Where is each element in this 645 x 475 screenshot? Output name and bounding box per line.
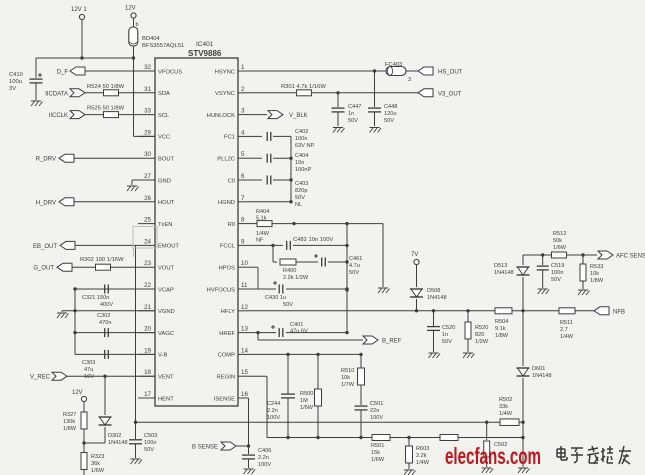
svg-text:14: 14 bbox=[241, 347, 248, 354]
svg-text:20: 20 bbox=[144, 326, 151, 333]
svg-text:5: 5 bbox=[241, 151, 245, 158]
svg-text:C0: C0 bbox=[228, 178, 235, 184]
svg-text:50V: 50V bbox=[144, 447, 154, 453]
svg-text:23: 23 bbox=[144, 260, 151, 267]
svg-text:R533: R533 bbox=[590, 264, 603, 270]
svg-text:1M: 1M bbox=[300, 398, 308, 404]
svg-text:R502: R502 bbox=[499, 397, 512, 403]
svg-text:1N4148: 1N4148 bbox=[494, 270, 514, 276]
svg-text:820: 820 bbox=[475, 332, 484, 338]
svg-text:2.7: 2.7 bbox=[560, 327, 568, 333]
svg-text:50V: 50V bbox=[348, 118, 358, 124]
svg-text:3: 3 bbox=[408, 77, 411, 83]
svg-text:27: 27 bbox=[144, 173, 151, 180]
svg-text:C501: C501 bbox=[370, 401, 383, 407]
svg-text:47u 6V: 47u 6V bbox=[290, 329, 308, 335]
svg-text:R501: R501 bbox=[371, 443, 384, 449]
svg-text:1n: 1n bbox=[348, 111, 354, 117]
svg-text:C430 1u: C430 1u bbox=[265, 295, 286, 301]
svg-text:17: 17 bbox=[144, 391, 151, 398]
svg-text:25: 25 bbox=[144, 217, 151, 224]
svg-text:C503: C503 bbox=[144, 433, 157, 439]
svg-text:R524 50 1/8W: R524 50 1/8W bbox=[87, 84, 125, 90]
svg-text:7V: 7V bbox=[411, 252, 418, 258]
svg-text:EMOUT: EMOUT bbox=[158, 244, 179, 250]
svg-text:3: 3 bbox=[241, 108, 245, 115]
svg-text:31: 31 bbox=[144, 86, 151, 93]
svg-text:10n: 10n bbox=[295, 160, 304, 166]
svg-text:C401: C401 bbox=[290, 322, 303, 328]
svg-text:IICCLK: IICCLK bbox=[49, 113, 68, 119]
svg-text:1: 1 bbox=[241, 64, 245, 71]
svg-text:33: 33 bbox=[144, 108, 151, 115]
svg-text:C303: C303 bbox=[82, 360, 95, 366]
svg-text:22: 22 bbox=[144, 282, 151, 289]
svg-text:V3_OUT: V3_OUT bbox=[438, 91, 462, 97]
svg-text:GND: GND bbox=[158, 178, 171, 184]
svg-text:B_REF: B_REF bbox=[382, 339, 402, 345]
svg-text:7: 7 bbox=[241, 195, 245, 202]
svg-text:R500: R500 bbox=[300, 391, 313, 397]
svg-text:1/6W: 1/6W bbox=[553, 245, 567, 251]
svg-text:R323: R323 bbox=[91, 454, 104, 460]
svg-text:63V NP: 63V NP bbox=[295, 143, 315, 149]
svg-text:1/6W: 1/6W bbox=[371, 457, 385, 463]
svg-text:VCC: VCC bbox=[158, 135, 170, 141]
svg-text:100V: 100V bbox=[258, 462, 271, 468]
svg-text:PLL2C: PLL2C bbox=[217, 157, 235, 163]
svg-text:B SENSE: B SENSE bbox=[192, 445, 218, 451]
svg-text:1N4148: 1N4148 bbox=[108, 440, 128, 446]
svg-text:VCAP: VCAP bbox=[158, 287, 174, 293]
svg-text:C404: C404 bbox=[295, 153, 308, 159]
svg-text:D513: D513 bbox=[494, 263, 507, 269]
svg-text:G_OUT: G_OUT bbox=[33, 266, 54, 272]
svg-text:50V: 50V bbox=[384, 118, 394, 124]
svg-text:12: 12 bbox=[241, 304, 248, 311]
svg-text:3V: 3V bbox=[9, 86, 16, 92]
svg-text:V-B: V-B bbox=[158, 353, 167, 359]
svg-text:1/4W: 1/4W bbox=[256, 231, 270, 237]
svg-text:11: 11 bbox=[241, 282, 248, 289]
svg-text:R_DRV: R_DRV bbox=[36, 157, 56, 163]
svg-text:C406: C406 bbox=[258, 448, 271, 454]
svg-text:9.1k: 9.1k bbox=[495, 326, 506, 332]
svg-text:100V: 100V bbox=[370, 415, 383, 421]
svg-text:C321 150n: C321 150n bbox=[82, 295, 109, 301]
svg-text:1N4148: 1N4148 bbox=[532, 373, 552, 379]
svg-text:820p: 820p bbox=[295, 188, 307, 194]
svg-text:R302 100 1/16W: R302 100 1/16W bbox=[80, 257, 124, 263]
svg-text:2.2n: 2.2n bbox=[258, 455, 269, 461]
svg-text:15: 15 bbox=[241, 369, 248, 376]
svg-text:HS_OUT: HS_OUT bbox=[438, 70, 463, 76]
svg-text:VSYNC: VSYNC bbox=[215, 91, 235, 97]
svg-text:D601: D601 bbox=[532, 366, 545, 372]
svg-text:29: 29 bbox=[144, 129, 151, 136]
svg-text:VFOCUS: VFOCUS bbox=[158, 69, 182, 75]
svg-text:C410: C410 bbox=[9, 72, 23, 78]
svg-text:COMP: COMP bbox=[218, 353, 236, 359]
svg-text:22n: 22n bbox=[370, 408, 379, 414]
svg-text:HOUT: HOUT bbox=[158, 200, 175, 206]
svg-text:HVFOCUS: HVFOCUS bbox=[207, 287, 235, 293]
svg-text:R603: R603 bbox=[416, 446, 429, 452]
svg-text:R512: R512 bbox=[553, 231, 566, 237]
svg-text:1/4W: 1/4W bbox=[416, 460, 430, 466]
svg-text:NL: NL bbox=[295, 202, 302, 208]
svg-text:50V: 50V bbox=[295, 195, 305, 201]
svg-text:R520: R520 bbox=[475, 325, 488, 331]
svg-text:1/4W: 1/4W bbox=[560, 334, 574, 340]
svg-text:120u: 120u bbox=[384, 111, 396, 117]
svg-text:H_DRV: H_DRV bbox=[36, 200, 56, 206]
svg-text:15k: 15k bbox=[371, 450, 380, 456]
svg-text:HFLY: HFLY bbox=[221, 309, 236, 315]
svg-text:2.2k 1/2W: 2.2k 1/2W bbox=[283, 275, 309, 281]
svg-text:C448: C448 bbox=[384, 104, 397, 110]
svg-text:D508: D508 bbox=[427, 288, 440, 294]
svg-text:100n: 100n bbox=[295, 136, 307, 142]
svg-text:IICDATA: IICDATA bbox=[45, 91, 68, 97]
svg-text:BFS3557AQL51: BFS3557AQL51 bbox=[142, 43, 184, 49]
svg-text:24: 24 bbox=[144, 238, 151, 245]
svg-text:HUNLOCK: HUNLOCK bbox=[207, 113, 235, 119]
svg-text:HENT: HENT bbox=[158, 396, 174, 402]
svg-text:R504: R504 bbox=[495, 319, 508, 325]
svg-text:10k: 10k bbox=[590, 271, 599, 277]
svg-text:SCL: SCL bbox=[158, 113, 170, 119]
svg-text:21: 21 bbox=[144, 304, 151, 311]
svg-text:C519: C519 bbox=[551, 263, 564, 269]
svg-text:1/2W: 1/2W bbox=[475, 339, 489, 345]
svg-text:R525 50 1/8W: R525 50 1/8W bbox=[87, 106, 125, 112]
svg-text:HREF: HREF bbox=[219, 331, 235, 337]
svg-text:4.7u: 4.7u bbox=[349, 263, 360, 269]
svg-text:8: 8 bbox=[241, 217, 245, 224]
svg-text:100n: 100n bbox=[551, 270, 563, 276]
svg-text:VAGC: VAGC bbox=[158, 331, 174, 337]
svg-text:9: 9 bbox=[241, 238, 245, 245]
svg-text:VGND: VGND bbox=[158, 309, 175, 315]
svg-text:1/8W: 1/8W bbox=[590, 278, 604, 284]
svg-text:D302: D302 bbox=[108, 433, 121, 439]
svg-text:R510: R510 bbox=[341, 368, 354, 374]
svg-text:HPOS: HPOS bbox=[219, 266, 236, 272]
svg-text:1n: 1n bbox=[442, 332, 448, 338]
svg-text:100n: 100n bbox=[144, 440, 156, 446]
svg-text:50V: 50V bbox=[283, 302, 293, 308]
svg-text:32: 32 bbox=[144, 64, 151, 71]
svg-text:FC1: FC1 bbox=[224, 135, 235, 141]
svg-text:2: 2 bbox=[241, 86, 245, 93]
svg-text:100V: 100V bbox=[267, 415, 280, 421]
svg-text:1/8W: 1/8W bbox=[63, 426, 77, 432]
svg-text:470n: 470n bbox=[99, 320, 111, 326]
svg-text:R404: R404 bbox=[256, 209, 269, 215]
svg-text:V_BLK: V_BLK bbox=[289, 113, 308, 119]
svg-text:100u: 100u bbox=[9, 79, 22, 85]
svg-text:1/7W: 1/7W bbox=[341, 382, 355, 388]
svg-text:C461: C461 bbox=[349, 256, 362, 262]
svg-text:100nP: 100nP bbox=[295, 167, 311, 173]
svg-text:18: 18 bbox=[144, 369, 151, 376]
svg-text:26: 26 bbox=[144, 195, 151, 202]
svg-text:1/8W: 1/8W bbox=[495, 333, 509, 339]
svg-text:BOUT: BOUT bbox=[158, 157, 175, 163]
svg-text:C520: C520 bbox=[442, 325, 455, 331]
svg-text:R0: R0 bbox=[228, 222, 235, 228]
svg-text:STV9886: STV9886 bbox=[188, 49, 222, 58]
svg-text:2.2k: 2.2k bbox=[416, 453, 427, 459]
svg-text:13: 13 bbox=[241, 326, 248, 333]
svg-text:EB_OUT: EB_OUT bbox=[33, 244, 57, 250]
svg-text:5.1k: 5.1k bbox=[256, 216, 267, 222]
svg-text:1/6W: 1/6W bbox=[91, 468, 105, 474]
svg-text:6: 6 bbox=[241, 173, 245, 180]
svg-text:1/4W: 1/4W bbox=[499, 411, 513, 417]
svg-text:19: 19 bbox=[144, 347, 151, 354]
svg-text:16: 16 bbox=[241, 391, 248, 398]
svg-text:BD404: BD404 bbox=[142, 36, 161, 42]
svg-text:SDA: SDA bbox=[158, 91, 170, 97]
svg-text:30: 30 bbox=[144, 151, 151, 158]
svg-text:47u: 47u bbox=[84, 367, 93, 373]
svg-text:4: 4 bbox=[241, 129, 245, 136]
svg-text:16V: 16V bbox=[84, 374, 94, 380]
svg-text:R400: R400 bbox=[283, 268, 296, 274]
svg-text:C244: C244 bbox=[267, 401, 280, 407]
svg-text:VENT: VENT bbox=[158, 375, 174, 381]
svg-text:50V: 50V bbox=[442, 339, 452, 345]
svg-text:12V: 12V bbox=[125, 6, 136, 12]
svg-text:R327: R327 bbox=[63, 412, 76, 418]
svg-text:REGIN: REGIN bbox=[217, 375, 235, 381]
svg-text:V_REC: V_REC bbox=[30, 375, 51, 381]
svg-text:C402: C402 bbox=[295, 129, 308, 135]
svg-text:C403: C403 bbox=[295, 181, 308, 187]
svg-text:C302: C302 bbox=[97, 313, 110, 319]
svg-text:ISENSE: ISENSE bbox=[214, 396, 235, 402]
svg-text:R511: R511 bbox=[560, 320, 573, 326]
svg-text:130k: 130k bbox=[63, 419, 75, 425]
svg-text:12V: 12V bbox=[72, 390, 83, 396]
svg-text:C482 10n 100V: C482 10n 100V bbox=[293, 237, 333, 243]
svg-text:FCCL: FCCL bbox=[220, 244, 236, 250]
svg-text:C447: C447 bbox=[348, 104, 361, 110]
svg-text:50V: 50V bbox=[349, 270, 359, 276]
svg-text:IC401: IC401 bbox=[196, 41, 214, 48]
svg-text:400V: 400V bbox=[100, 302, 113, 308]
svg-text:36k: 36k bbox=[91, 461, 100, 467]
svg-text:VOUT: VOUT bbox=[158, 266, 175, 272]
svg-text:50V: 50V bbox=[551, 277, 561, 283]
svg-text:33k: 33k bbox=[499, 404, 508, 410]
svg-text:elecfans.com: elecfans.com bbox=[445, 443, 541, 469]
svg-text:10: 10 bbox=[241, 260, 248, 267]
svg-text:1N4148: 1N4148 bbox=[427, 295, 447, 301]
svg-text:HSYNC: HSYNC bbox=[215, 69, 235, 75]
svg-text:D_F: D_F bbox=[57, 69, 69, 75]
svg-text:NFB: NFB bbox=[613, 309, 625, 315]
svg-text:R301 4.7k 1/16W: R301 4.7k 1/16W bbox=[281, 84, 326, 90]
svg-text:12V 1: 12V 1 bbox=[71, 7, 87, 13]
svg-text:FC403: FC403 bbox=[385, 62, 402, 68]
svg-text:NF: NF bbox=[256, 238, 264, 244]
svg-text:AFC SENS: AFC SENS bbox=[616, 254, 645, 260]
svg-text:1/6W: 1/6W bbox=[300, 405, 314, 411]
svg-text:HGND: HGND bbox=[218, 200, 235, 206]
svg-text:50k: 50k bbox=[553, 238, 562, 244]
svg-text:TxEN: TxEN bbox=[158, 222, 173, 228]
svg-text:2.2n: 2.2n bbox=[267, 408, 278, 414]
svg-text:10k: 10k bbox=[341, 375, 350, 381]
